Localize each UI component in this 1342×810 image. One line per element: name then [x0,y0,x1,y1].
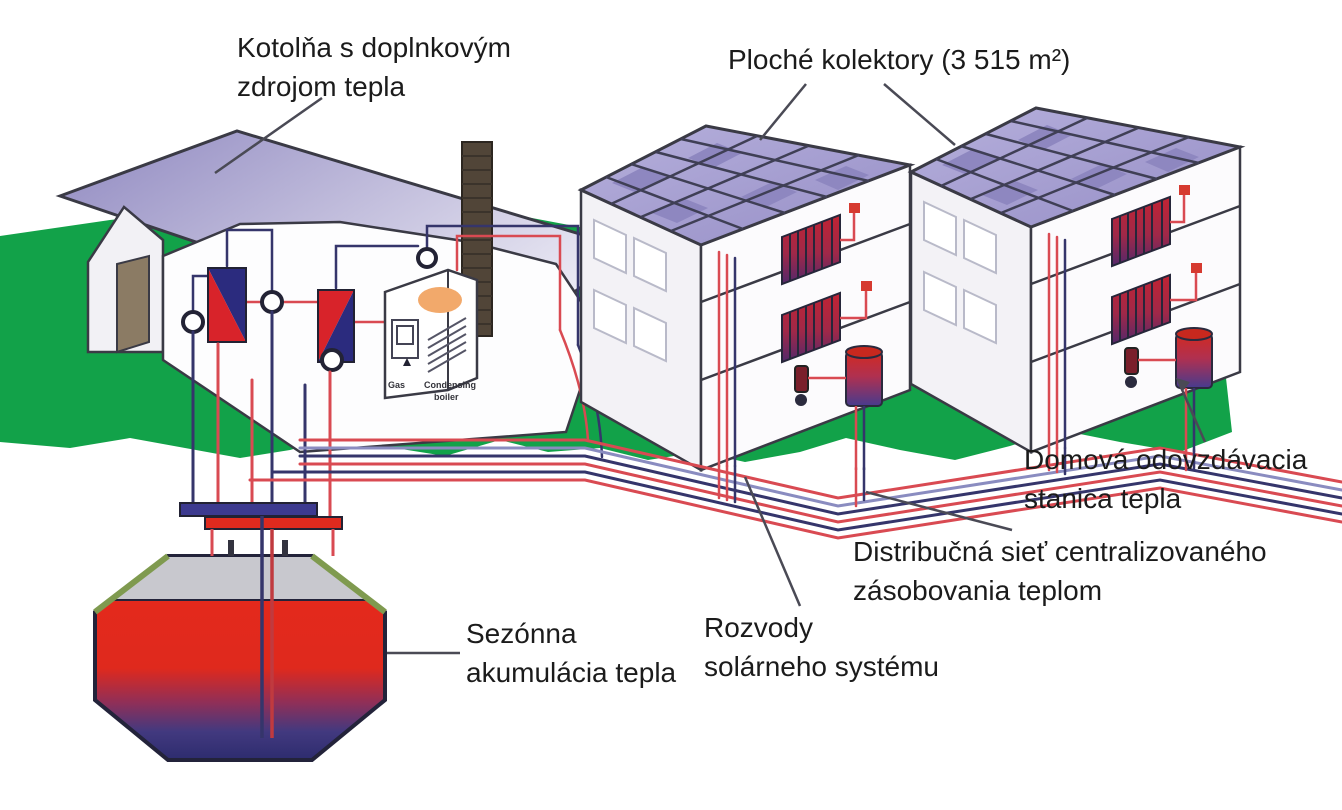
label-condensing-2: boiler [434,392,459,402]
label-kolektory-line1: Ploché kolektory (3 515 m²) [728,40,1070,79]
label-rozvody-line2: solárneho systému [704,647,939,686]
label-condensing-1: Condensing [424,380,476,390]
label-domova-line2: stanica tepla [1024,479,1307,518]
boiler-house-door [117,256,149,352]
leader-kolektory-2 [884,84,955,145]
district-heating-figure: Kotolňa s doplnkovým zdrojom tepla Ploch… [0,0,1342,810]
label-distribucna: Distribučná sieť centralizovaného zásobo… [853,532,1267,610]
hot-manifold [205,517,342,529]
heat-exchanger-1 [208,268,246,342]
burner-flame [418,287,462,313]
label-kotolna-line2: zdrojom tepla [237,67,511,106]
tank-lid [111,556,370,600]
label-sezonna-line2: akumulácia tepla [466,653,676,692]
label-sezonna-line1: Sezónna [466,614,676,653]
condensing-boiler [385,270,477,398]
label-gas: Gas [388,380,405,390]
label-domova: Domová odovzdávacia stanica tepla [1024,440,1307,518]
lid-post-2 [282,540,288,556]
label-sezonna: Sezónna akumulácia tepla [466,614,676,692]
label-distribucna-line2: zásobovania teplom [853,571,1267,610]
label-kolektory: Ploché kolektory (3 515 m²) [728,40,1070,79]
leader-kolektory-1 [760,84,806,140]
label-kotolna-line1: Kotolňa s doplnkovým [237,28,511,67]
label-domova-line1: Domová odovzdávacia [1024,440,1307,479]
cold-manifold [180,503,317,516]
seasonal-storage [95,503,385,760]
label-rozvody: Rozvody solárneho systému [704,608,939,686]
label-kotolna: Kotolňa s doplnkovým zdrojom tepla [237,28,511,106]
label-distribucna-line1: Distribučná sieť centralizovaného [853,532,1267,571]
lid-post-1 [228,540,234,556]
label-rozvody-line1: Rozvody [704,608,939,647]
